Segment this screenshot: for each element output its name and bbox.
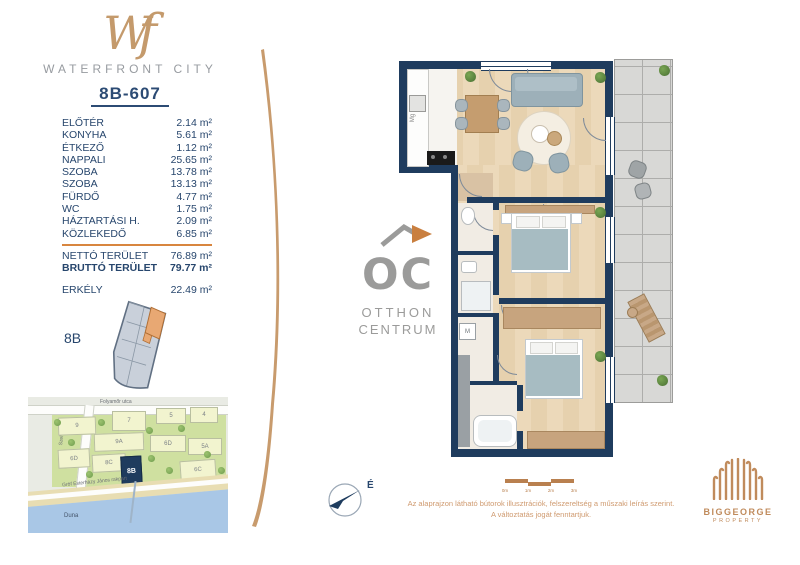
pillow [542,216,566,228]
wall-segment [399,61,407,173]
street-top-label: Folyamőr utca [100,399,132,405]
table-row: NAPPALI25.65 m² [62,154,212,166]
map-building: 9 [58,416,97,435]
location-map: Folyamőr utca Szellős utca 9 7 5 4 9A 6D… [28,397,228,533]
biggeorge-logo: BIGGEORGE PROPERTY [690,458,786,524]
wall-segment [451,165,458,457]
logo-f: f [138,3,157,61]
oc-roof-arrow-icon [376,222,438,248]
pillow [516,216,540,228]
scale-tick: 0m [500,488,510,493]
scale-segment [528,482,551,486]
blanket [512,229,568,270]
wall-segment [517,385,523,411]
building-key-diagram [98,298,182,394]
oc-line2: CENTRUM [352,322,444,337]
dining-chair [497,117,510,130]
tree-icon [204,451,211,458]
area-table: ELŐTÉR2.14 m² KONYHA5.61 m² ÉTKEZŐ1.12 m… [62,117,212,296]
oc-line1: OTTHON [352,305,444,320]
tree-icon [218,467,225,474]
terrace-table [627,307,638,318]
developer-division: PROPERTY [690,518,786,524]
bed [525,339,583,399]
sofa-cushions [515,77,577,91]
scale-bar: 0m 1m 2m 3m [503,479,579,495]
window [605,217,615,263]
map-building: 9A [94,432,145,452]
wall-segment [458,251,499,255]
table-row: FÜRDŐ4.77 m² [62,191,212,203]
shaft [458,355,470,447]
scale-tick: 2m [546,488,556,493]
scale-segment [505,479,528,483]
bed [511,213,571,273]
bathtub-inner [478,420,512,442]
developer-name: BIGGEORGE [690,507,786,517]
plant-icon [659,65,670,76]
table-row: ELŐTÉR2.14 m² [62,117,212,129]
biggeorge-glyph-icon [709,458,767,500]
map-building: 5 [156,408,186,424]
gross-area-row: BRUTTÓ TERÜLET79.77 m² [62,262,212,274]
net-area-row: NETTÓ TERÜLET76.89 m² [62,250,212,262]
table-row: WC1.75 m² [62,203,212,215]
pillow [530,342,553,354]
tree-icon [54,419,61,426]
map-building: 6D [58,448,91,469]
plant-icon [465,71,476,82]
table-row: HÁZTARTÁSI H.2.09 m² [62,215,212,227]
balcony-area-row: ERKÉLY22.49 m² [62,284,212,296]
tree-icon [146,427,153,434]
table-row: ÉTKEZŐ1.12 m² [62,142,212,154]
river-label: Duna [64,513,78,519]
map-building: 4 [190,407,218,423]
plant-icon [595,72,606,83]
plant-icon [595,207,606,218]
wall-segment [451,449,613,457]
scale-segment [551,479,574,483]
north-arrow-icon [324,477,368,521]
table-row: KONYHA5.61 m² [62,129,212,141]
cooktop-burner [443,155,447,159]
wall-segment [517,431,523,451]
shower [461,281,491,311]
table-row: SZOBA13.78 m² [62,166,212,178]
otthon-centrum-logo: OC OTTHON CENTRUM [352,222,444,337]
table-row: KÖZLEKEDŐ6.85 m² [62,228,212,240]
plant-icon [595,351,606,362]
tree-icon [166,467,173,474]
washing-machine: M [459,323,476,340]
terrace [614,59,673,403]
side-table [547,131,562,146]
map-building: 6D [150,435,186,452]
dining-chair [455,117,468,130]
tree-icon [86,471,93,478]
pillow [555,342,578,354]
tree-icon [68,439,75,446]
block-label: 8B [64,330,81,346]
brand-name: WATERFRONT CITY [0,62,260,76]
disclaimer-line1: Az alaprajzon látható bútorok illusztrác… [398,499,684,510]
nightstand [501,213,512,224]
cooktop-burner [431,155,435,159]
map-building: 7 [112,411,146,431]
brochure-page: Wf WATERFRONT CITY 8B-607 ELŐTÉR2.14 m² … [0,0,800,565]
fridge-label: Mg [410,114,416,122]
wardrobe [503,307,601,329]
wall-segment [493,235,499,295]
bathroom-sink [461,261,477,273]
kitchen-sink [409,95,426,112]
scale-tick: 3m [569,488,579,493]
tree-icon [178,425,185,432]
blanket [526,355,580,396]
tree-icon [98,419,105,426]
divider-curve [246,44,290,534]
wall-segment [458,313,499,317]
wardrobe [527,431,605,449]
waterfront-logo-icon: Wf [0,6,260,59]
wall-segment [493,317,499,385]
wall-segment [499,298,613,304]
table-divider [62,244,212,246]
disclaimer: Az alaprajzon látható bútorok illusztrác… [398,499,684,520]
north-label: É [367,480,374,491]
oc-initials: OC [352,253,444,297]
bathtub [473,415,517,447]
wall-segment [493,203,499,210]
plant-icon [657,375,668,386]
unit-code: 8B-607 [0,84,260,107]
nightstand [571,213,582,224]
compass: É [324,477,384,523]
window [605,117,615,175]
window [605,357,615,403]
dining-chair [497,99,510,112]
disclaimer-line2: A változtatás jogát fenntartjuk. [398,510,684,521]
table-row: SZOBA13.13 m² [62,178,212,190]
scale-tick: 1m [523,488,533,493]
tree-icon [148,455,155,462]
toilet [461,207,475,225]
dining-table [465,95,499,133]
dining-chair [455,99,468,112]
wall-segment [467,197,605,203]
